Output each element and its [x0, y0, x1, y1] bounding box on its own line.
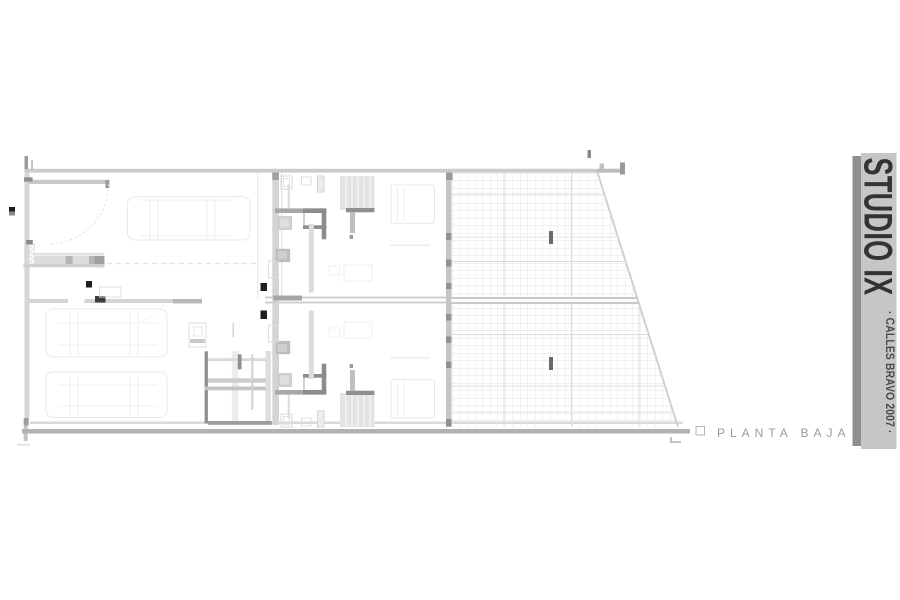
- svg-text:· CALLES BRAVO 2007 ·: · CALLES BRAVO 2007 ·: [883, 311, 896, 434]
- svg-text:STUDIO IX: STUDIO IX: [855, 158, 900, 296]
- svg-text:PLANTA BAJA: PLANTA BAJA: [717, 426, 850, 440]
